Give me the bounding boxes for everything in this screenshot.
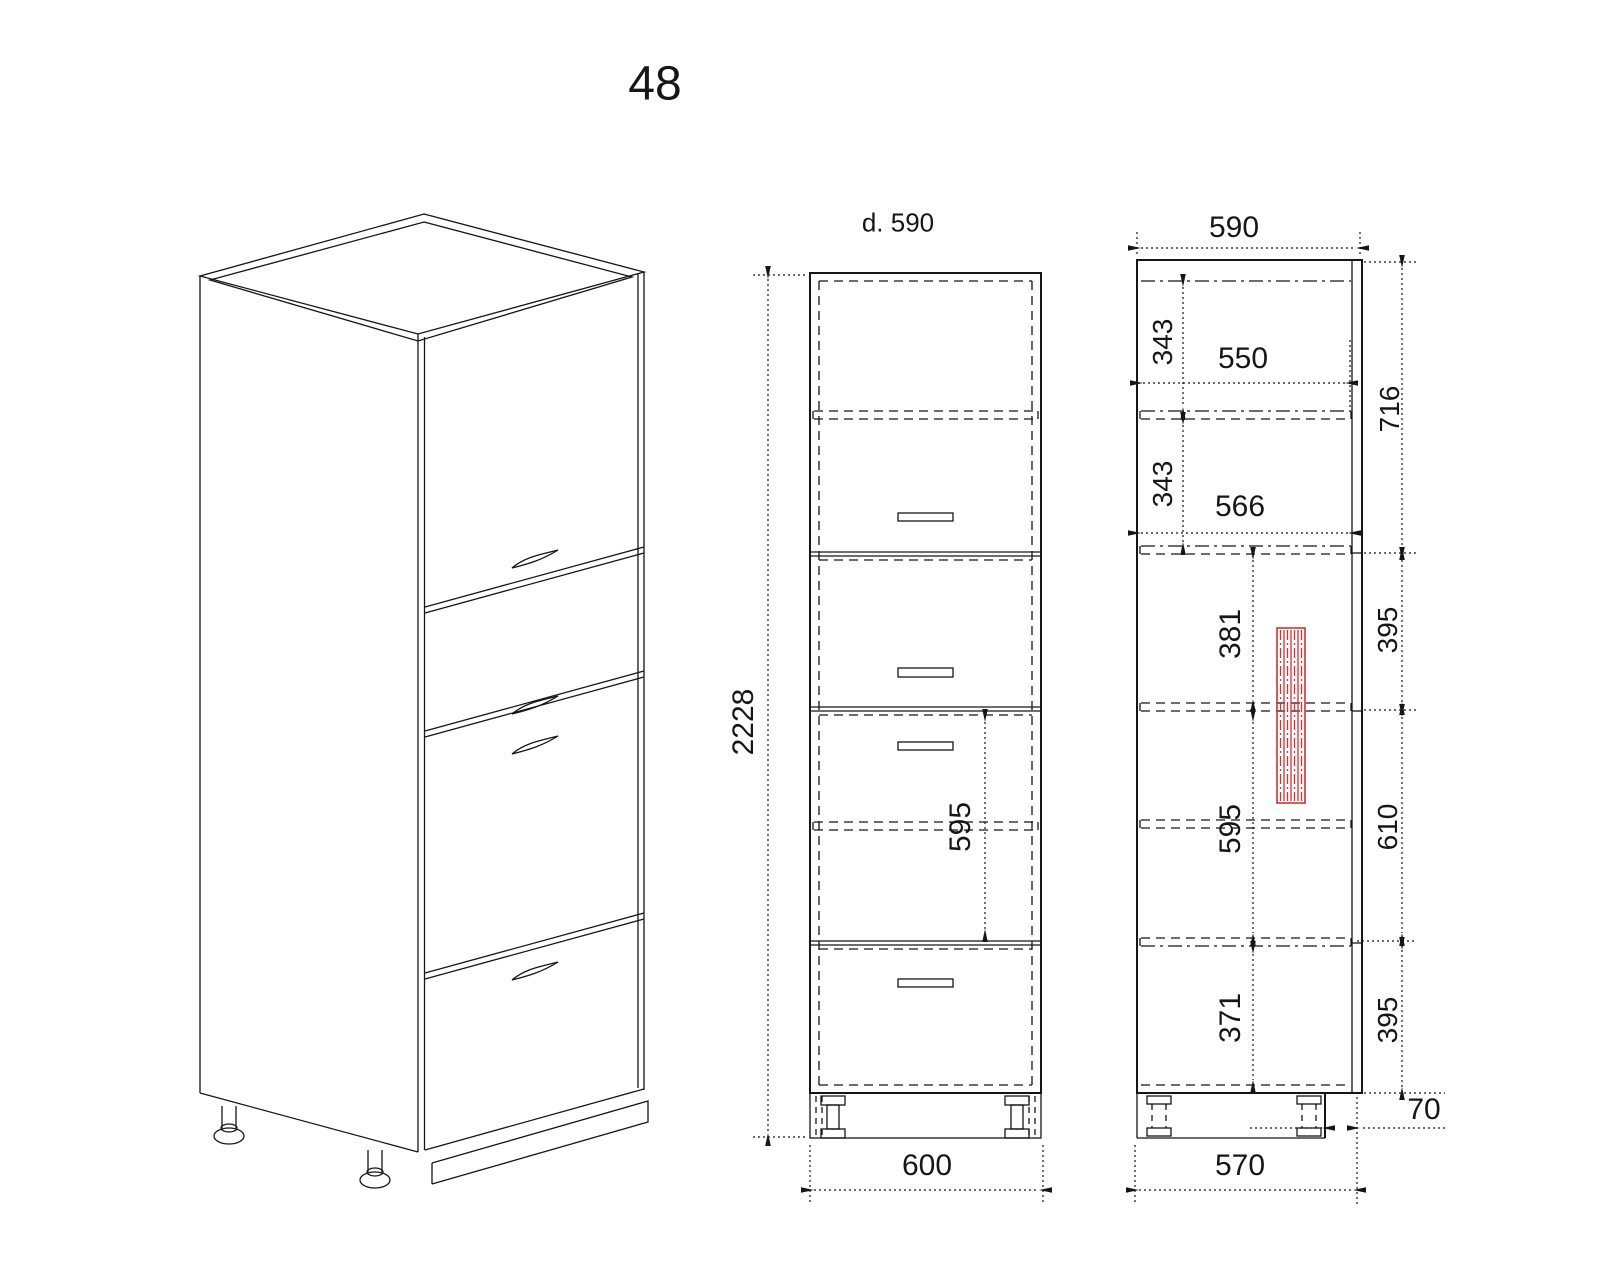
dim-col-upper: 395 bbox=[1372, 607, 1404, 654]
front-view bbox=[753, 273, 1043, 1205]
handle-rect-3 bbox=[898, 742, 953, 750]
side-shelf-lines bbox=[1140, 281, 1351, 1085]
dim-col-lower: 395 bbox=[1372, 997, 1404, 1044]
dim-width: 600 bbox=[902, 1149, 952, 1183]
cabinet-foot-back-left bbox=[214, 1106, 244, 1144]
technical-drawing-page: 48 d. 590 2228 595 600 590 343 550 343 5… bbox=[0, 0, 1600, 1280]
dim-opening-front: 595 bbox=[944, 802, 978, 852]
dim-oven-offset: 381 bbox=[1214, 609, 1248, 659]
dim-base-depth: 570 bbox=[1215, 1149, 1265, 1183]
shelf-lines bbox=[813, 411, 1038, 830]
door-handle-1 bbox=[512, 550, 558, 568]
handle-rect-2 bbox=[898, 668, 953, 677]
dim-gap-top: 343 bbox=[1147, 319, 1179, 366]
front-plinth bbox=[810, 1093, 1041, 1138]
dim-depth: 590 bbox=[1209, 211, 1259, 245]
dim-bottom-section: 371 bbox=[1214, 993, 1248, 1043]
front-depth-note: d. 590 bbox=[862, 208, 934, 239]
page-title: 48 bbox=[628, 57, 681, 112]
handle-rect-1 bbox=[898, 513, 953, 521]
dim-col-top: 716 bbox=[1374, 386, 1406, 433]
isometric-view bbox=[200, 214, 648, 1188]
side-view bbox=[1135, 232, 1445, 1205]
dim-depth-lower: 566 bbox=[1215, 490, 1265, 524]
dim-depth-upper: 550 bbox=[1218, 342, 1268, 376]
red-hatched-part bbox=[1277, 628, 1305, 803]
cabinet-drawing bbox=[0, 0, 1600, 1280]
handle-rect-4 bbox=[898, 979, 953, 987]
drawer-handle-4 bbox=[512, 962, 558, 980]
dim-oven-opening: 595 bbox=[1214, 804, 1248, 854]
dim-gap-mid: 343 bbox=[1147, 461, 1179, 508]
door-handle-3 bbox=[512, 736, 558, 754]
dim-col-mid: 610 bbox=[1372, 804, 1404, 851]
dim-height: 2228 bbox=[727, 689, 761, 756]
cabinet-foot-front-left bbox=[360, 1150, 390, 1188]
dim-plinth-recess: 70 bbox=[1407, 1093, 1440, 1127]
side-plinth bbox=[1137, 1093, 1325, 1138]
